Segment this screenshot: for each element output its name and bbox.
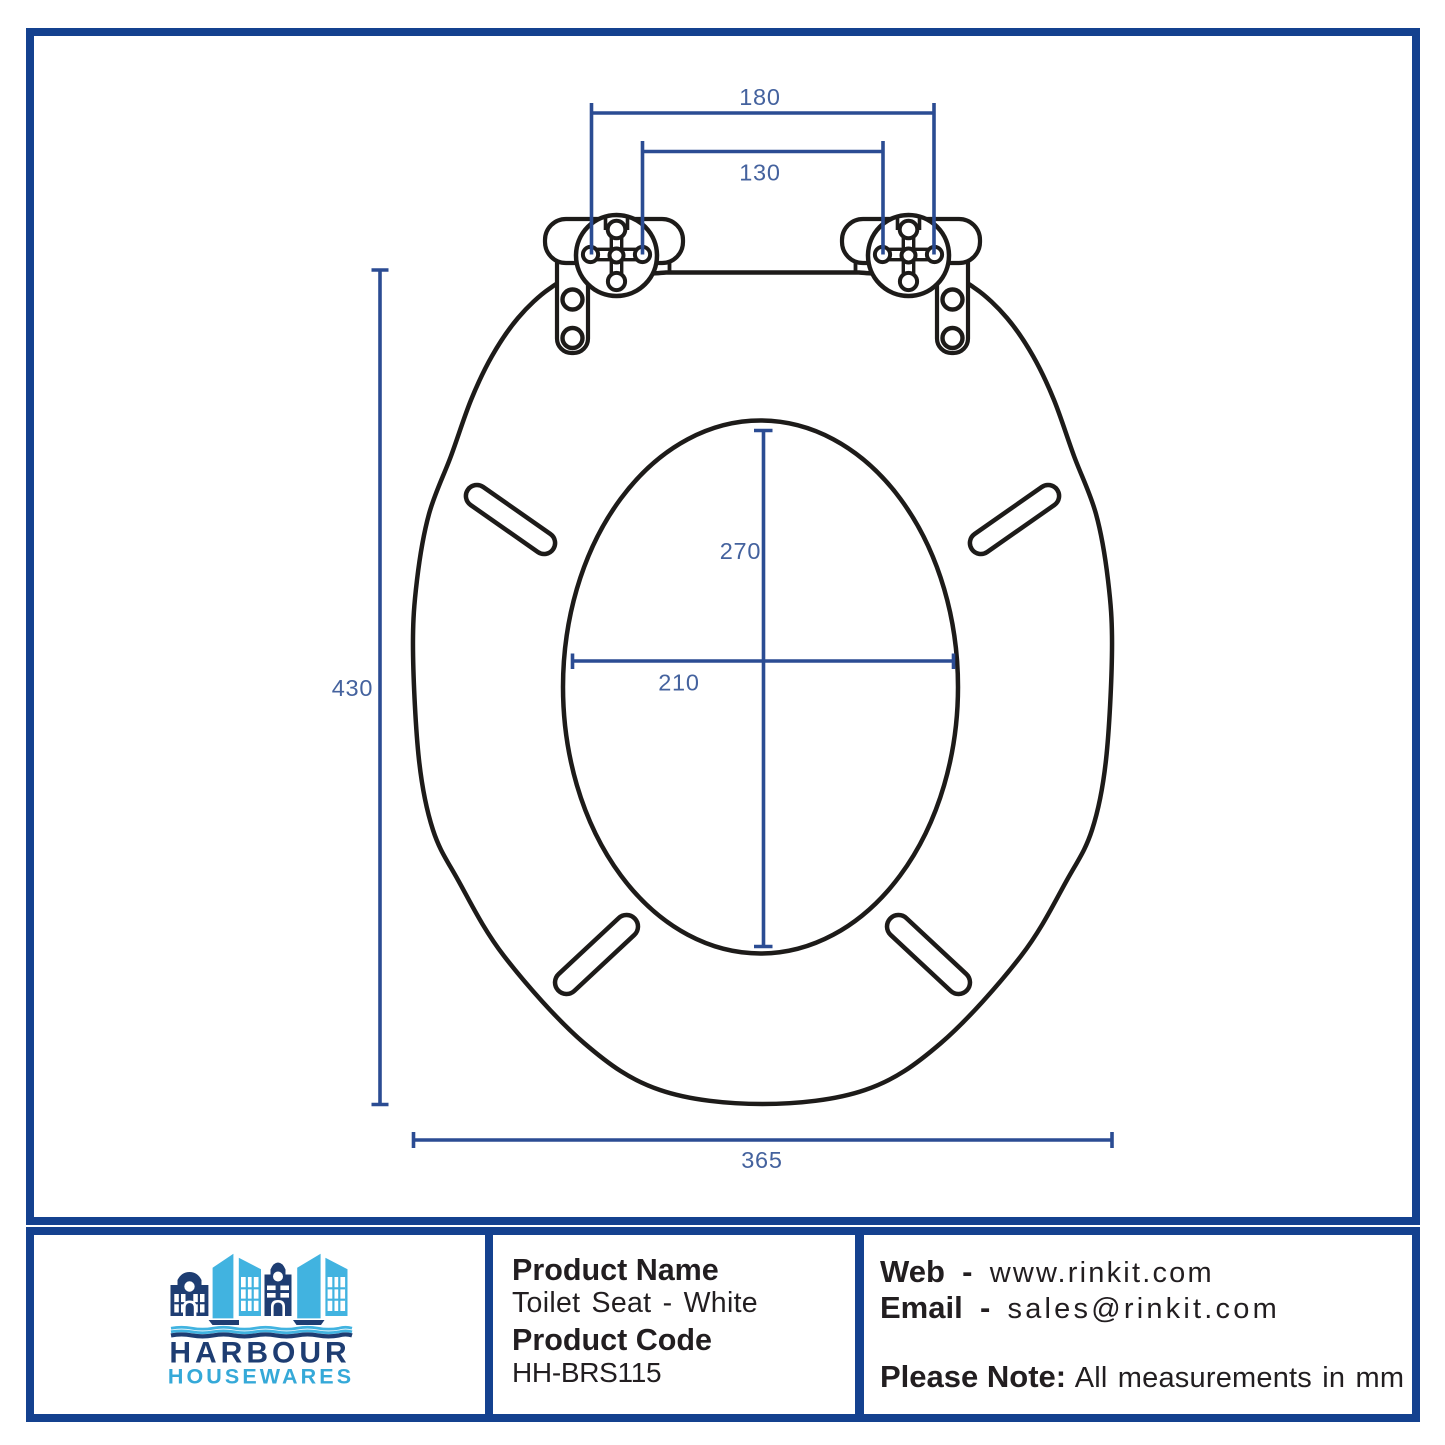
svg-text:180: 180 [739, 84, 781, 110]
svg-text:130: 130 [739, 160, 781, 186]
svg-text:HOUSEWARES: HOUSEWARES [168, 1365, 354, 1389]
svg-text:430: 430 [332, 675, 374, 701]
svg-text:270: 270 [720, 538, 762, 564]
svg-text:210: 210 [658, 670, 700, 696]
svg-text:365: 365 [741, 1147, 783, 1173]
